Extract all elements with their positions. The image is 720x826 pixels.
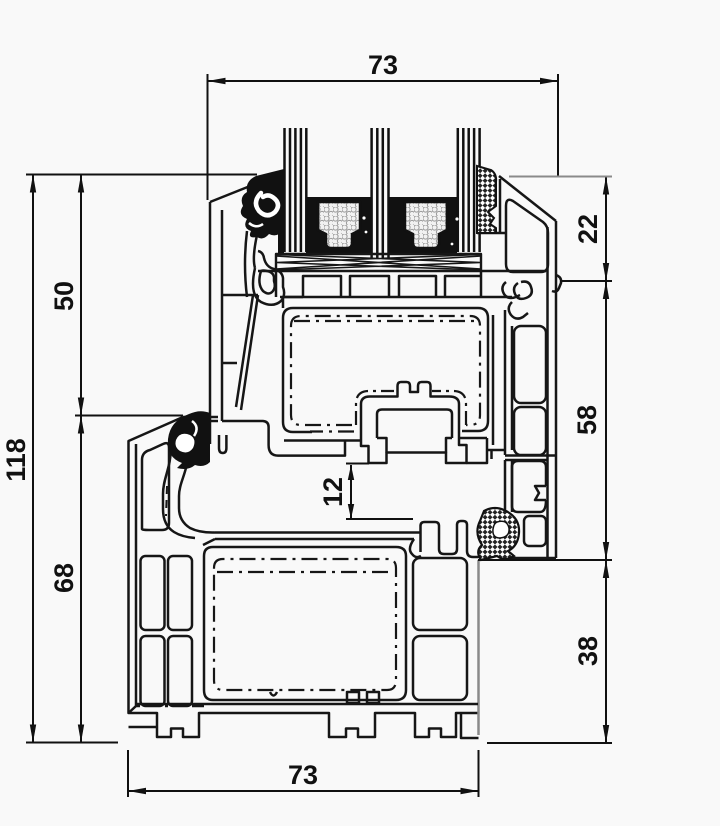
svg-text:58: 58 <box>572 405 602 435</box>
svg-text:50: 50 <box>49 281 79 311</box>
svg-text:38: 38 <box>573 636 603 666</box>
svg-text:118: 118 <box>1 438 31 482</box>
svg-text:12: 12 <box>318 477 348 507</box>
svg-text:22: 22 <box>573 214 603 244</box>
svg-text:68: 68 <box>49 563 79 593</box>
svg-text:73: 73 <box>288 760 318 790</box>
svg-text:73: 73 <box>368 50 398 80</box>
